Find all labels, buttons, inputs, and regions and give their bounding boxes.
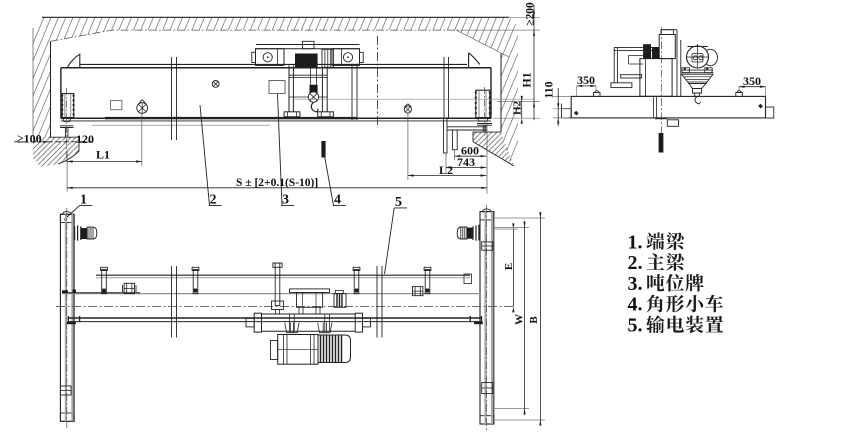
svg-text:110: 110 [542, 81, 556, 98]
svg-text:E: E [503, 263, 515, 270]
svg-text:H2: H2 [511, 100, 523, 115]
svg-text:4.: 4. [628, 294, 643, 316]
svg-text:S ± [2+0.1(S-10)]: S ± [2+0.1(S-10)] [236, 177, 318, 189]
svg-text:5.: 5. [628, 315, 643, 337]
svg-text:350: 350 [577, 73, 595, 87]
svg-text:L2: L2 [439, 163, 453, 177]
svg-text:2.: 2. [628, 252, 643, 274]
svg-text:L1: L1 [96, 148, 110, 162]
svg-text:≥200: ≥200 [525, 2, 537, 26]
svg-text:3.: 3. [628, 273, 643, 295]
svg-text:≥100: ≥100 [17, 132, 42, 146]
svg-text:120: 120 [76, 132, 94, 146]
svg-text:B: B [528, 316, 540, 324]
svg-text:1.: 1. [628, 231, 643, 253]
svg-text:350: 350 [743, 74, 761, 88]
svg-text:743: 743 [457, 155, 475, 169]
svg-text:W: W [514, 314, 526, 325]
svg-text:H1: H1 [520, 72, 534, 87]
